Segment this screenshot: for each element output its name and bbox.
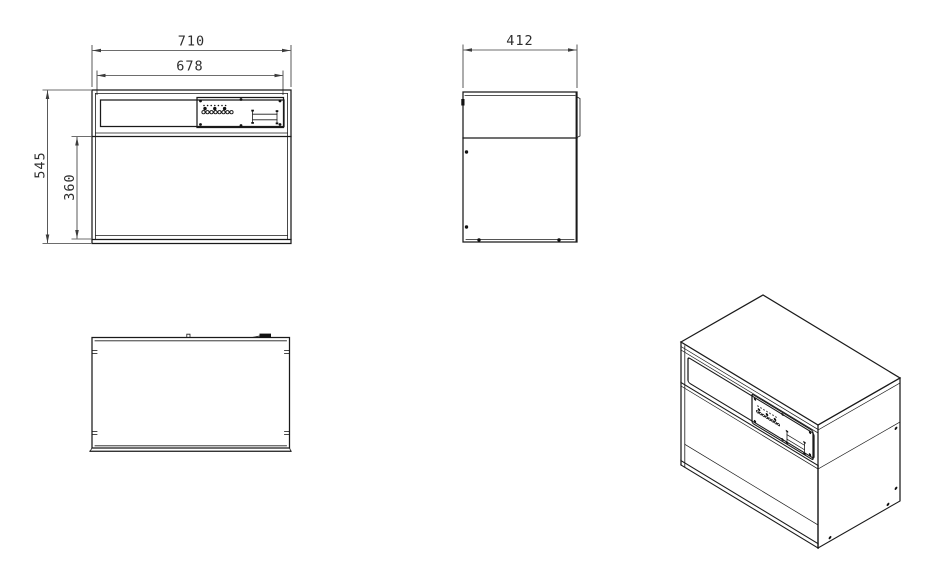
arrowhead-left-icon — [97, 74, 106, 78]
cabinet-technical-drawing: 710 678 545 360 — [0, 0, 935, 573]
interior-floor-back-edge — [685, 444, 818, 525]
arrowhead-down-icon — [46, 235, 50, 244]
button-dot — [202, 111, 205, 114]
hinge-ticks — [92, 351, 290, 435]
button-dot — [222, 111, 225, 114]
dim-label: 545 — [33, 151, 49, 178]
dim-opening-height: 360 — [62, 137, 91, 240]
dim-side-depth: 412 — [463, 33, 577, 88]
iso-panel-buttons — [756, 410, 779, 426]
screw-dot — [240, 124, 243, 127]
dim-label: 360 — [62, 173, 78, 200]
screw-dot — [199, 100, 202, 103]
control-panel-buttons — [202, 111, 233, 114]
button-dot — [210, 111, 213, 114]
arrowhead-left-icon — [464, 48, 473, 52]
power-switch-mark — [461, 99, 464, 106]
button-dot — [774, 421, 776, 424]
button-dot — [762, 414, 764, 417]
button-dot — [218, 111, 221, 114]
led-dot-large — [213, 107, 216, 110]
led-dot — [775, 416, 776, 418]
arrowhead-up-icon — [75, 137, 79, 146]
screw-dot — [895, 486, 898, 490]
switch-bump — [260, 334, 272, 338]
dim-total-height: 545 — [33, 90, 92, 244]
top-view — [90, 334, 291, 452]
led-dot — [772, 414, 773, 416]
arrowhead-up-icon — [46, 91, 50, 100]
button-dot — [756, 410, 758, 413]
led-dot — [210, 105, 212, 107]
lamp-window-strip — [101, 100, 285, 127]
button-dot — [777, 423, 779, 426]
led-dot — [760, 407, 761, 409]
screw-dot — [477, 238, 480, 241]
led-dot — [757, 405, 758, 407]
arrowhead-left-icon — [93, 49, 102, 53]
led-dot — [225, 105, 227, 107]
header-bottom-edge — [818, 422, 900, 469]
led-dot — [214, 105, 216, 107]
bottom-front-edge — [681, 465, 818, 548]
led-dot — [207, 105, 209, 107]
button-dot — [771, 419, 773, 422]
drawing-sheet: 710 678 545 360 — [0, 0, 935, 573]
bracket-tip — [251, 110, 254, 112]
screw-dot — [895, 426, 898, 430]
led-dot — [763, 409, 764, 411]
cabinet-front-outline — [92, 90, 291, 244]
button-dot — [226, 111, 229, 114]
bracket-tip — [276, 123, 279, 125]
button-dot — [214, 111, 217, 114]
bracket-tip — [276, 110, 279, 112]
screw-dot — [279, 100, 282, 103]
dim-label: 678 — [176, 59, 203, 75]
side-view: 412 — [461, 33, 580, 242]
cabinet-side-outline — [463, 92, 577, 242]
button-dot — [765, 416, 767, 419]
screw-dot — [240, 98, 243, 101]
bottom-lip-top-edge — [681, 461, 818, 544]
led-dot-large — [774, 417, 777, 421]
arrowhead-right-icon — [275, 74, 284, 78]
arrowhead-right-icon — [568, 48, 577, 52]
screw-dot — [199, 123, 202, 126]
button-dot — [768, 417, 770, 420]
screw-dot — [465, 150, 468, 153]
button-dot — [230, 111, 233, 114]
isometric-view — [681, 295, 900, 548]
led-dot-large — [223, 107, 226, 110]
arrowhead-right-icon — [282, 49, 291, 53]
cabinet-top-outline — [92, 338, 290, 449]
dim-label: 412 — [506, 33, 533, 49]
panel-bracket — [251, 110, 278, 125]
arrowhead-down-icon — [75, 230, 79, 239]
led-dot — [218, 105, 220, 107]
led-dot — [769, 412, 770, 414]
led-dot — [766, 410, 767, 412]
button-dot — [206, 111, 209, 114]
led-dot-large — [203, 107, 206, 110]
screw-dot — [887, 502, 890, 506]
screw-dot — [557, 238, 560, 241]
dim-label: 710 — [178, 34, 205, 50]
control-panel-indicator-leds — [203, 105, 226, 111]
control-panel-screws — [199, 98, 281, 127]
screw-dot — [465, 225, 468, 228]
front-view: 710 678 545 360 — [33, 34, 292, 244]
bracket-tip — [251, 122, 254, 124]
screw-dot — [279, 123, 282, 126]
led-dot — [221, 105, 223, 107]
screw-dot — [829, 535, 832, 539]
led-dot — [203, 105, 205, 107]
button-dot — [759, 412, 761, 415]
